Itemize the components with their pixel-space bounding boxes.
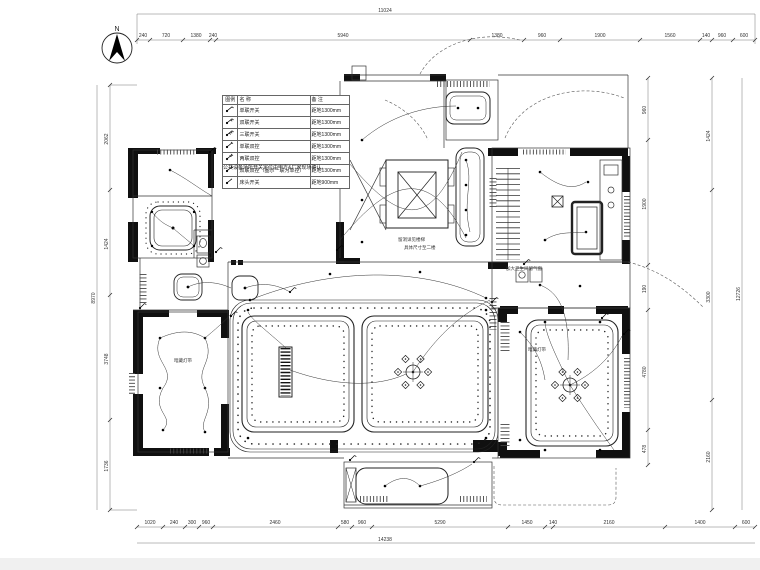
cove-note-left: 暗藏灯带 [174,357,192,364]
bottom-total-dim: 14238 [378,537,392,543]
cad-ceiling-plan: N [0,0,760,570]
window-hatches [132,152,627,499]
downlight-dots [151,107,602,488]
legend-row: 床头开关 距地900mm [223,177,350,189]
ceiling-features [146,84,618,504]
cove-note-right: 暗藏灯带 [528,346,546,353]
bottom-dim: 960 [358,520,367,526]
elevator-note-2: 具体尺寸至二楼 [404,244,436,251]
north-label: N [114,26,119,33]
dimension-lines [97,14,755,543]
right-dim: 4780 [642,366,648,377]
top-dim: 240 [139,33,148,39]
room-outlines [133,66,630,508]
legend-col-remark: 备 注 [310,96,349,105]
legend-row: 三联开关 距地1300mm [223,129,350,141]
right-dim: 1900 [642,198,648,209]
legend-note: 公共设备场所开关定位由甲方&厂家现场确认。 [223,164,351,172]
right-dim: 3300 [706,291,712,302]
linear-chandelier [279,347,292,397]
bottom-dim: 300 [188,520,197,526]
bedside-switch-icon [225,177,235,185]
top-dim: 1900 [594,33,605,39]
single-two-way-switch-icon [225,141,235,149]
bottom-dim: 1400 [694,520,705,526]
legend-row: 两联双控 距地1300mm [223,153,350,165]
bottom-dim: 960 [202,520,211,526]
chandeliers [279,347,589,402]
bottom-band [0,558,760,570]
bottom-dim: 1450 [521,520,532,526]
top-dim: 1380 [491,33,502,39]
right-dim: 478 [642,445,648,454]
legend-row: 单联开关 距地1300mm [223,105,350,117]
left-dim: 2062 [104,133,110,144]
dimension-labels: 11024 14238 8970 12726 240 720 1380 240 … [91,8,750,543]
left-total-dim: 8970 [91,292,97,303]
top-dim: 600 [740,33,749,39]
left-dim: 3748 [104,353,110,364]
double-two-way-switch-icon [225,153,235,161]
right-dim: 960 [642,106,648,115]
floor-plan-drawing: N [0,0,760,570]
top-dim: 720 [162,33,171,39]
legend-row: 单联双控 距地1300mm [223,141,350,153]
bottom-dim: 240 [170,520,179,526]
bottom-dim: 140 [549,520,558,526]
triple-switch-icon [225,129,235,137]
north-arrow-icon: N [102,26,132,63]
top-dim: 960 [538,33,547,39]
bottom-dim: 1020 [144,520,155,526]
legend-row: 双联开关 距地1300mm [223,117,350,129]
double-switch-icon [225,117,235,125]
left-dim: 1424 [104,238,110,249]
bottom-dim: 2160 [603,520,614,526]
elevator-note-1: 留洞详见楼梯 [398,236,425,243]
top-dim: 960 [718,33,727,39]
top-dim: 140 [702,33,711,39]
right-total-dim: 12726 [736,287,742,301]
left-dim: 1736 [104,460,110,471]
single-switch-icon [225,105,235,113]
top-dim: 1380 [190,33,201,39]
top-dim: 5940 [337,33,348,39]
top-total-dim: 11024 [378,8,392,14]
legend-col-symbol: 图例 [223,96,238,105]
bottom-dim: 2460 [269,520,280,526]
right-dim: 190 [642,285,648,294]
bottom-dim: 580 [341,520,350,526]
right-dim: 2160 [706,451,712,462]
top-dim: 1560 [664,33,675,39]
right-dim: 1424 [706,130,712,141]
bottom-dim: 5290 [434,520,445,526]
dashed-guides [385,37,704,505]
vent-note: 加大卫生间留气窗 [506,265,542,272]
legend-col-name: 名 称 [238,96,310,105]
walls [128,74,630,458]
switch-symbols [139,148,630,464]
top-dim: 240 [209,33,218,39]
switch-legend-table: 图例 名 称 备 注 单联开关 距地1300mm 双联开关 距地1300mm 三… [222,95,350,189]
bottom-dim: 600 [742,520,751,526]
